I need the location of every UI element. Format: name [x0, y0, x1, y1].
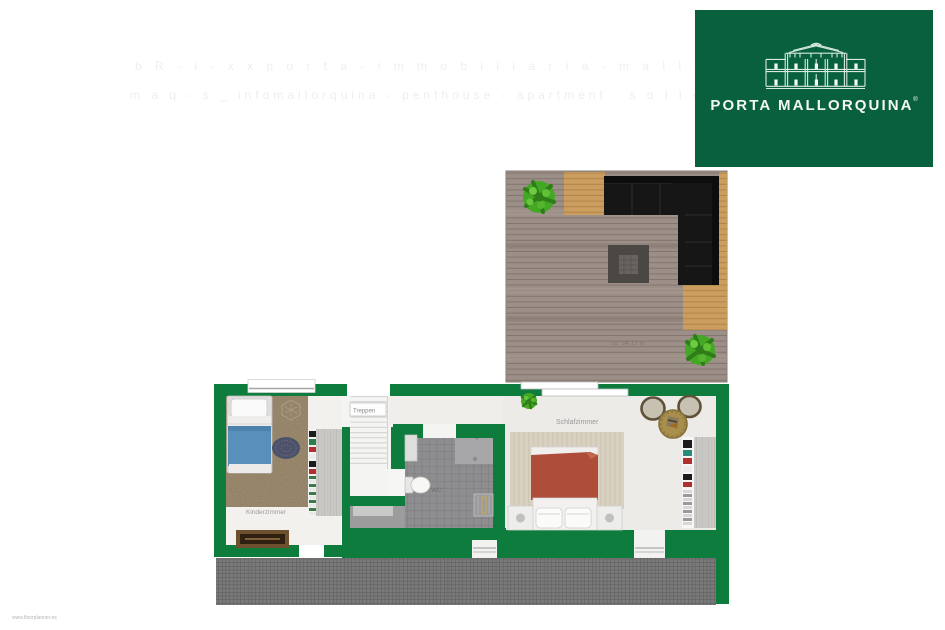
- svg-text:®: ®: [913, 95, 918, 103]
- svg-text:Treppen: Treppen: [353, 409, 375, 415]
- svg-text:www.floorplanner.es: www.floorplanner.es: [12, 615, 57, 621]
- svg-text:Kinderzimmer: Kinderzimmer: [246, 509, 287, 516]
- svg-text:Schlafzimmer: Schlafzimmer: [556, 419, 599, 426]
- svg-text:b R - i - x x p o r t a - i m: b R - i - x x p o r t a - i m m o b i l …: [135, 59, 763, 73]
- svg-text:WC: WC: [431, 487, 442, 494]
- svg-text:PORTA MALLORQUINA: PORTA MALLORQUINA: [710, 97, 913, 114]
- svg-text:ca. 34,15 m: ca. 34,15 m: [611, 341, 645, 347]
- svg-text:m a q - s _ infomallorquina -: m a q - s _ infomallorquina - penthouse …: [130, 88, 719, 102]
